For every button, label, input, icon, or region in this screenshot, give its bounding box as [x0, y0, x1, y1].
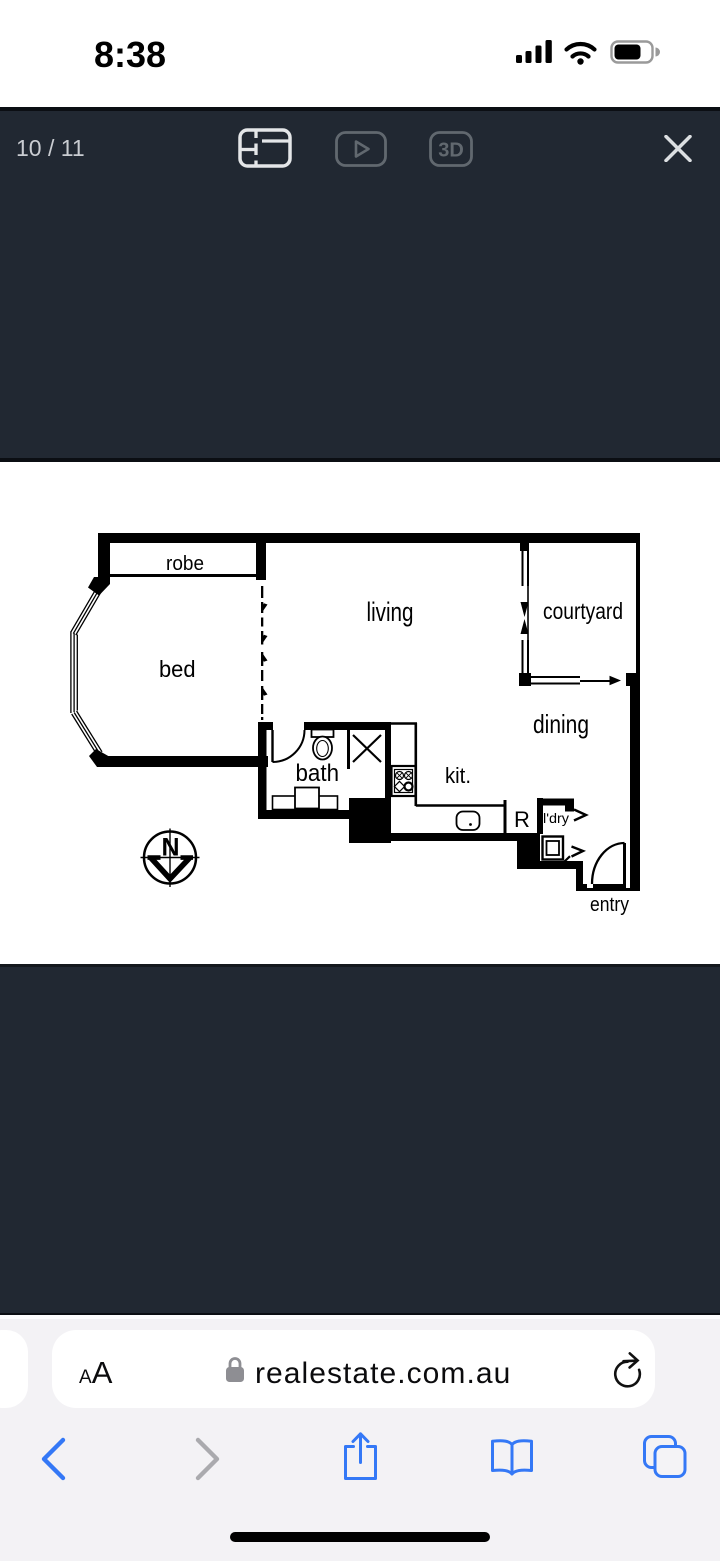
svg-text:N: N [161, 834, 179, 862]
svg-text:3D: 3D [438, 140, 464, 162]
svg-text:R: R [514, 807, 530, 832]
svg-text:l'dry: l'dry [543, 810, 569, 826]
svg-text:entry: entry [590, 894, 629, 916]
svg-text:kit.: kit. [445, 763, 471, 788]
svg-text:robe: robe [166, 553, 204, 575]
svg-text:bath: bath [296, 760, 340, 787]
svg-text:dining: dining [533, 709, 589, 739]
svg-text:living: living [367, 597, 414, 627]
svg-text:courtyard: courtyard [543, 598, 623, 624]
svg-text:bed: bed [159, 656, 196, 682]
